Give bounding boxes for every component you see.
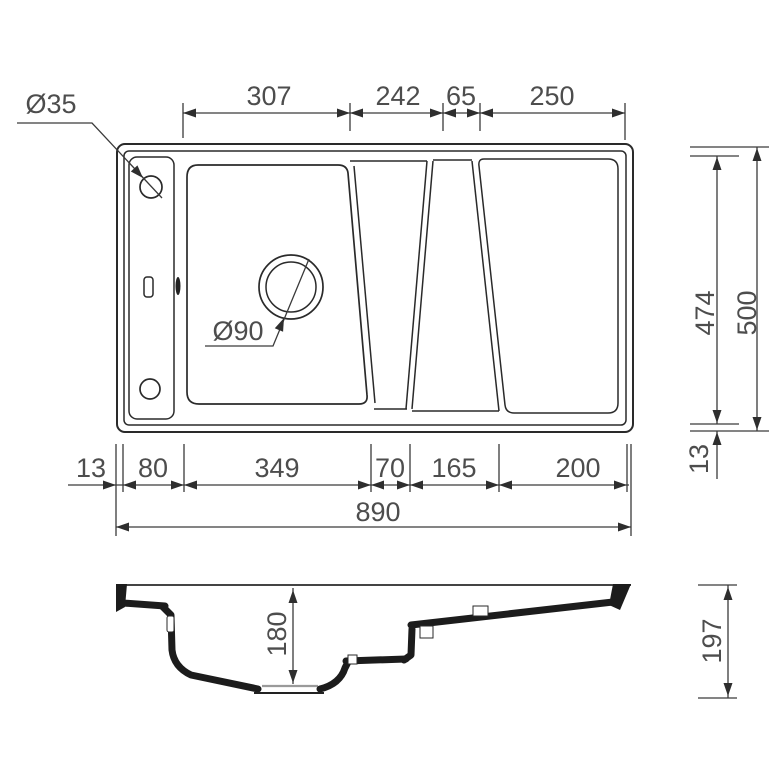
section-step: [404, 629, 412, 660]
dim-drain: Ø90: [212, 316, 263, 346]
dim-bottom-349: 349: [254, 453, 299, 483]
ridge-right-a: [472, 161, 499, 411]
section-notch-overflow: [167, 616, 174, 632]
overflow-slot: [144, 277, 153, 297]
section-right-wall: [320, 662, 348, 689]
dim-right-13: 13: [684, 444, 714, 474]
drainer-panel: [479, 159, 618, 413]
sink-inner-rim: [124, 151, 626, 425]
dim-bottom-13: 13: [76, 453, 106, 483]
section-drainer-band: [411, 602, 613, 625]
dim-bottom-165: 165: [431, 453, 476, 483]
sink-outer-edge: [117, 144, 633, 432]
plan-view: [117, 144, 633, 432]
accessory-hole: [140, 379, 160, 399]
ridge-left-b: [412, 161, 433, 409]
dim-top-242: 242: [375, 81, 420, 111]
section-view: [116, 584, 631, 693]
dimension-arrows: [103, 109, 762, 697]
dim-top-307: 307: [246, 81, 291, 111]
dim-top-65: 65: [446, 81, 476, 111]
dim-bottom-200: 200: [555, 453, 600, 483]
section-left-rim: [116, 584, 127, 612]
ridge-left-a: [406, 161, 427, 409]
dim-overall-890: 890: [355, 497, 400, 527]
section-dim-lines: [293, 585, 737, 698]
section-notch-band: [473, 606, 488, 616]
section-notch-step: [420, 626, 433, 638]
section-notch-ledge: [348, 655, 357, 664]
dim-right-474: 474: [690, 290, 720, 335]
dim-faucet-hole: Ø35: [25, 89, 76, 119]
section-right-rim: [609, 584, 631, 610]
section-left-wall: [162, 606, 258, 689]
dim-top-250: 250: [529, 81, 574, 111]
dim-bottom-80: 80: [138, 453, 168, 483]
plan-dimensions: Ø35 Ø90 307 242 65 250: [17, 81, 769, 536]
dim-bottom-70: 70: [375, 453, 405, 483]
drain-outer: [259, 255, 323, 319]
bowl-overflow-notch: [176, 277, 181, 295]
dim-right-500: 500: [732, 290, 762, 335]
technical-drawing: Ø35 Ø90 307 242 65 250: [0, 0, 780, 780]
dim-height-197: 197: [697, 618, 727, 663]
drain-inner: [266, 262, 316, 312]
dim-depth-180: 180: [262, 611, 292, 656]
main-bowl: [187, 165, 367, 404]
